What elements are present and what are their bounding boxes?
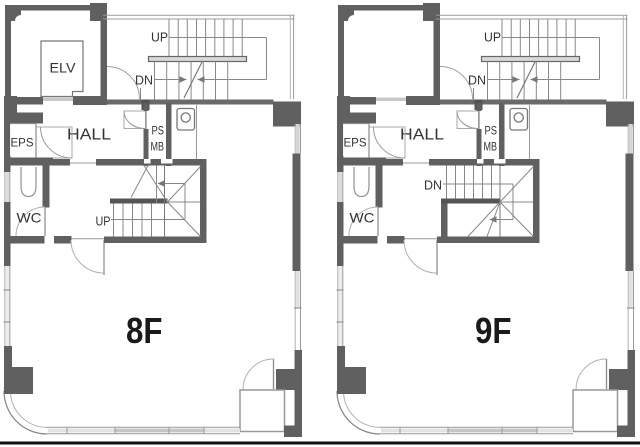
svg-text:HALL: HALL: [400, 127, 444, 144]
svg-text:PS: PS: [485, 126, 498, 138]
svg-text:UP: UP: [484, 30, 501, 44]
svg-text:WC: WC: [350, 210, 375, 226]
svg-text:DN: DN: [468, 74, 486, 88]
svg-text:HALL: HALL: [67, 127, 111, 144]
svg-text:EPS: EPS: [11, 136, 34, 150]
svg-text:UP: UP: [96, 215, 111, 229]
svg-text:PS: PS: [152, 126, 165, 138]
svg-text:MB: MB: [151, 142, 165, 154]
svg-text:EPS: EPS: [344, 136, 367, 150]
svg-text:UP: UP: [151, 30, 168, 44]
svg-text:DN: DN: [424, 179, 442, 193]
svg-text:ELV: ELV: [50, 60, 77, 76]
svg-text:9F: 9F: [475, 310, 512, 351]
svg-text:8F: 8F: [126, 310, 163, 351]
svg-text:MB: MB: [484, 142, 498, 154]
svg-text:WC: WC: [17, 210, 42, 226]
svg-text:DN: DN: [135, 74, 153, 88]
